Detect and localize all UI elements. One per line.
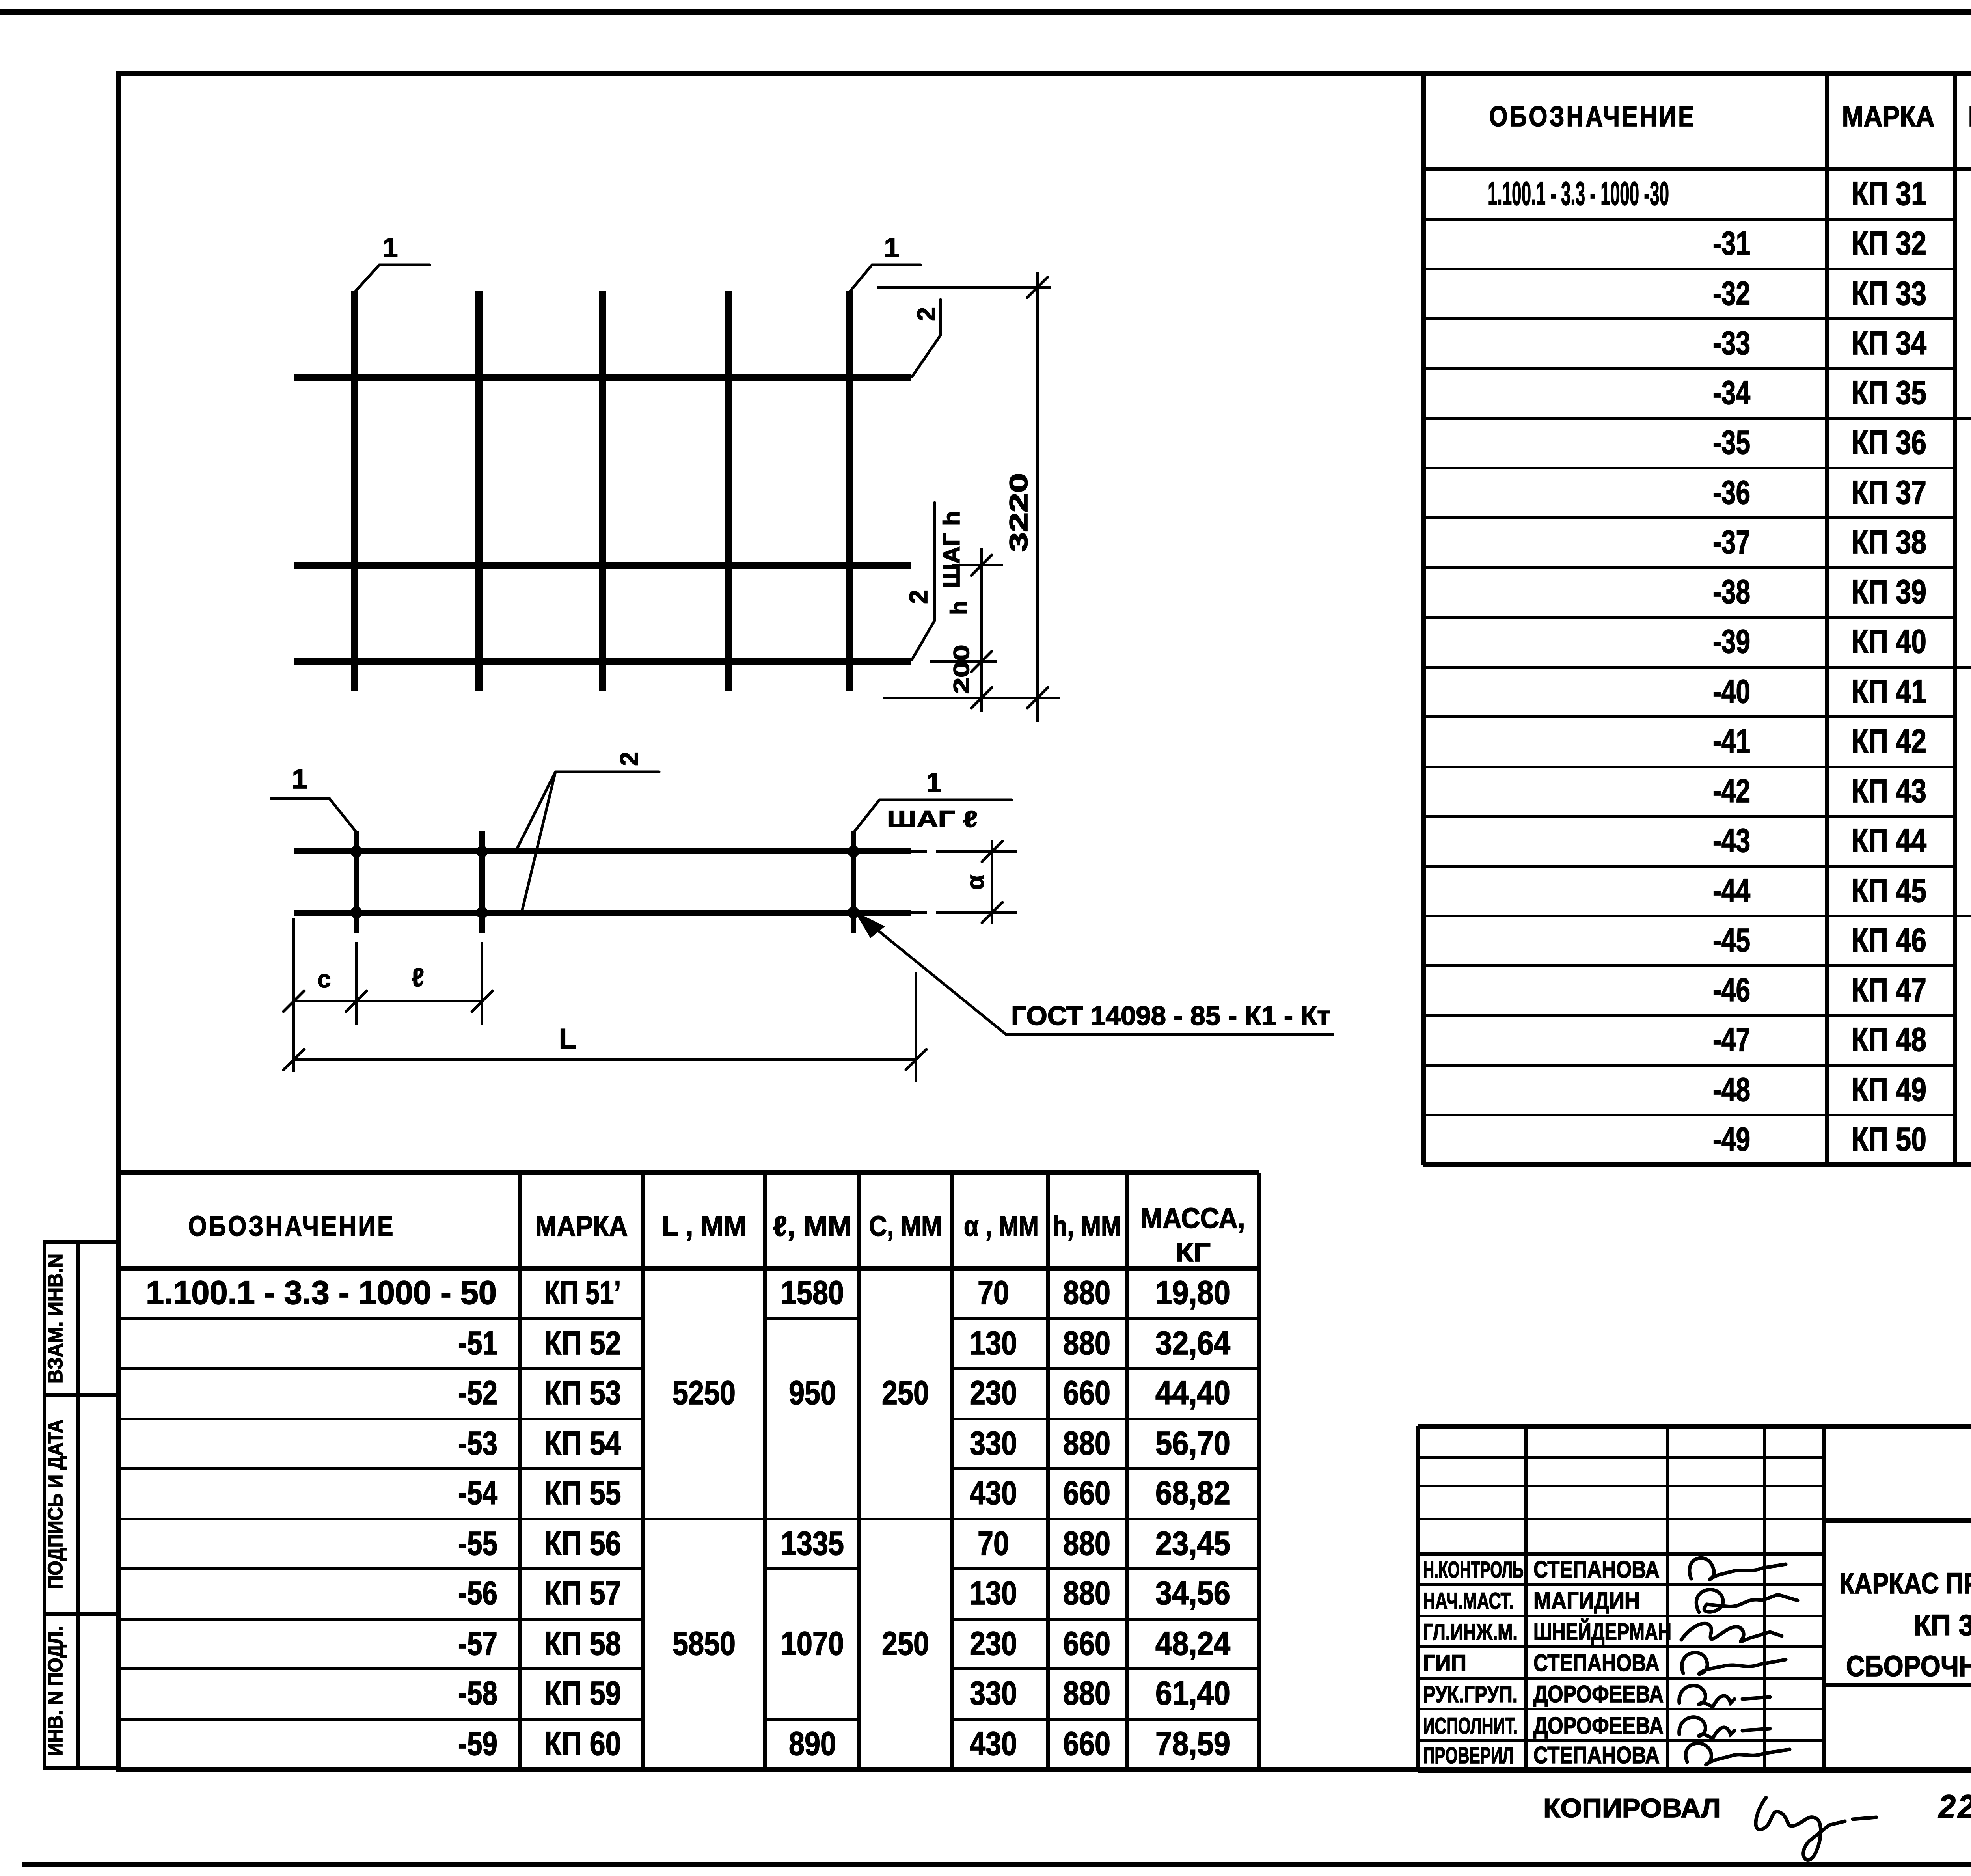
- svg-text:КП 44: КП 44: [1852, 822, 1926, 859]
- svg-text:ГЛ.ИНЖ.М.: ГЛ.ИНЖ.М.: [1423, 1619, 1518, 1645]
- svg-text:КП 55: КП 55: [544, 1474, 621, 1511]
- svg-text:СБОРОЧНЫЙ: СБОРОЧНЫЙ: [1846, 1649, 1971, 1682]
- svg-text:-34: -34: [1713, 374, 1750, 411]
- svg-text:61,40: 61,40: [1155, 1675, 1230, 1712]
- svg-text:-33: -33: [1713, 324, 1750, 361]
- svg-text:48,24: 48,24: [1155, 1625, 1230, 1662]
- svg-text:1: 1: [383, 232, 398, 263]
- svg-text:ВЗАМ. ИНВ.N: ВЗАМ. ИНВ.N: [44, 1254, 67, 1384]
- svg-text:1.100.1 - 3.3 - 1000 - 50: 1.100.1 - 3.3 - 1000 - 50: [146, 1274, 497, 1311]
- svg-text:-47: -47: [1713, 1021, 1750, 1058]
- svg-text:ДОРОФЕЕВА: ДОРОФЕЕВА: [1533, 1712, 1664, 1739]
- svg-text:КП 31 ... КП 60: КП 31 ... КП 60: [1914, 1609, 1971, 1641]
- svg-text:ГИП: ГИП: [1423, 1651, 1466, 1676]
- svg-text:-31: -31: [1713, 225, 1750, 262]
- svg-text:32,64: 32,64: [1155, 1325, 1230, 1362]
- svg-text:880: 880: [1063, 1325, 1110, 1362]
- svg-text:МАРКА: МАРКА: [1842, 101, 1935, 132]
- svg-text:КП 56: КП 56: [544, 1525, 621, 1562]
- svg-text:330: 330: [970, 1425, 1017, 1462]
- svg-text:-46: -46: [1713, 971, 1750, 1008]
- svg-text:КП 47: КП 47: [1852, 971, 1926, 1008]
- svg-text:-36: -36: [1713, 474, 1750, 511]
- svg-text:56,70: 56,70: [1155, 1425, 1230, 1462]
- svg-text:200: 200: [949, 645, 974, 694]
- svg-text:70: 70: [978, 1274, 1009, 1311]
- svg-text:КП 37: КП 37: [1852, 474, 1926, 511]
- svg-text:КП 50: КП 50: [1852, 1121, 1926, 1158]
- svg-text:h: h: [946, 601, 972, 615]
- svg-text:-32: -32: [1713, 275, 1750, 312]
- svg-text:Н.КОНТРОЛЬ: Н.КОНТРОЛЬ: [1423, 1557, 1524, 1583]
- svg-text:78,59: 78,59: [1155, 1725, 1230, 1762]
- svg-text:КП 35: КП 35: [1852, 374, 1926, 411]
- svg-text:РУК.ГРУП.: РУК.ГРУП.: [1423, 1682, 1518, 1707]
- svg-text:L , ММ: L , ММ: [1968, 101, 1971, 132]
- svg-text:-40: -40: [1713, 673, 1750, 710]
- svg-text:-55: -55: [458, 1525, 497, 1562]
- svg-text:880: 880: [1063, 1675, 1110, 1712]
- svg-text:КП 42: КП 42: [1852, 723, 1926, 760]
- svg-text:КП 43: КП 43: [1852, 772, 1926, 809]
- svg-text:44,40: 44,40: [1155, 1374, 1230, 1411]
- svg-text:ПОДПИСЬ И ДАТА: ПОДПИСЬ И ДАТА: [44, 1420, 67, 1589]
- svg-text:-41: -41: [1713, 723, 1750, 760]
- svg-text:КП 36: КП 36: [1852, 424, 1926, 461]
- svg-text:230: 230: [970, 1374, 1017, 1411]
- svg-text:-43: -43: [1713, 822, 1750, 859]
- svg-text:ℓ: ℓ: [412, 963, 424, 992]
- svg-text:-38: -38: [1713, 573, 1750, 610]
- svg-text:КАРКАС ПРОСТРАНСТВЕННЫЙ: КАРКАС ПРОСТРАНСТВЕННЫЙ: [1839, 1567, 1971, 1600]
- svg-text:h, ММ: h, ММ: [1053, 1211, 1121, 1242]
- svg-text:L: L: [559, 1023, 576, 1055]
- svg-text:КП 39: КП 39: [1852, 573, 1926, 610]
- svg-text:МАГИДИН: МАГИДИН: [1533, 1587, 1640, 1614]
- svg-text:КП 46: КП 46: [1852, 922, 1926, 959]
- svg-text:-48: -48: [1713, 1071, 1750, 1108]
- svg-text:-52: -52: [458, 1374, 497, 1411]
- svg-text:КП 33: КП 33: [1852, 275, 1926, 312]
- svg-text:-49: -49: [1713, 1121, 1750, 1158]
- svg-text:α: α: [962, 875, 989, 890]
- svg-text:ОБОЗНАЧЕНИЕ: ОБОЗНАЧЕНИЕ: [188, 1211, 395, 1242]
- svg-text:-54: -54: [458, 1474, 497, 1511]
- svg-text:22179: 22179: [1938, 1788, 1971, 1825]
- svg-text:68,82: 68,82: [1155, 1474, 1230, 1511]
- svg-text:-39: -39: [1713, 623, 1750, 660]
- svg-text:КП 59: КП 59: [544, 1675, 621, 1712]
- svg-text:3220: 3220: [1004, 473, 1033, 552]
- svg-text:ИНВ. N ПОДЛ.: ИНВ. N ПОДЛ.: [44, 1626, 67, 1756]
- svg-text:-45: -45: [1713, 922, 1750, 959]
- svg-text:2: 2: [912, 307, 941, 321]
- svg-text:ПРОВЕРИЛ: ПРОВЕРИЛ: [1423, 1743, 1514, 1768]
- svg-text:660: 660: [1063, 1725, 1110, 1762]
- svg-text:СТЕПАНОВА: СТЕПАНОВА: [1533, 1650, 1660, 1676]
- svg-text:660: 660: [1063, 1374, 1110, 1411]
- svg-text:70: 70: [978, 1525, 1009, 1562]
- svg-text:130: 130: [970, 1325, 1017, 1362]
- svg-text:1.100.1 - 3.3 - 1000 -30: 1.100.1 - 3.3 - 1000 -30: [1488, 175, 1669, 212]
- svg-text:880: 880: [1063, 1274, 1110, 1311]
- svg-text:660: 660: [1063, 1474, 1110, 1511]
- svg-text:1: 1: [292, 764, 307, 794]
- svg-text:ШНЕЙДЕРМАН: ШНЕЙДЕРМАН: [1533, 1619, 1671, 1645]
- svg-text:2: 2: [904, 590, 933, 604]
- svg-text:-53: -53: [458, 1425, 497, 1462]
- svg-text:-35: -35: [1713, 424, 1750, 461]
- svg-text:1335: 1335: [781, 1525, 844, 1562]
- svg-text:34,56: 34,56: [1155, 1574, 1230, 1611]
- svg-text:КОПИРОВАЛ: КОПИРОВАЛ: [1543, 1793, 1721, 1823]
- svg-text:880: 880: [1063, 1525, 1110, 1562]
- svg-text:КП 31: КП 31: [1852, 175, 1926, 212]
- svg-text:-42: -42: [1713, 772, 1750, 809]
- svg-text:КГ: КГ: [1175, 1238, 1211, 1267]
- svg-text:КП 52: КП 52: [544, 1325, 621, 1362]
- svg-text:430: 430: [970, 1474, 1017, 1511]
- svg-text:250: 250: [882, 1374, 929, 1411]
- svg-text:230: 230: [970, 1625, 1017, 1662]
- svg-text:НАЧ.МАСТ.: НАЧ.МАСТ.: [1423, 1588, 1514, 1614]
- svg-text:КП 41: КП 41: [1852, 673, 1926, 710]
- svg-text:5850: 5850: [673, 1625, 736, 1662]
- svg-text:23,45: 23,45: [1155, 1525, 1230, 1562]
- svg-text:ДОРОФЕЕВА: ДОРОФЕЕВА: [1533, 1681, 1664, 1707]
- svg-text:ОБОЗНАЧЕНИЕ: ОБОЗНАЧЕНИЕ: [1489, 101, 1696, 132]
- svg-text:2: 2: [615, 752, 643, 766]
- svg-text:С, ММ: С, ММ: [869, 1211, 942, 1242]
- svg-text:КП 53: КП 53: [544, 1374, 621, 1411]
- svg-text:КП 57: КП 57: [544, 1574, 621, 1611]
- svg-text:1: 1: [884, 232, 900, 263]
- svg-text:МАССА,: МАССА,: [1141, 1203, 1245, 1234]
- svg-text:ИСПОЛНИТ.: ИСПОЛНИТ.: [1423, 1713, 1518, 1739]
- svg-text:КП 32: КП 32: [1852, 225, 1926, 262]
- svg-text:ШАГ h: ШАГ h: [939, 511, 965, 588]
- svg-text:с: с: [317, 966, 331, 993]
- svg-text:1580: 1580: [781, 1274, 844, 1311]
- svg-text:130: 130: [970, 1574, 1017, 1611]
- svg-text:КП 49: КП 49: [1852, 1071, 1926, 1108]
- svg-text:1: 1: [926, 767, 942, 798]
- svg-text:-59: -59: [458, 1725, 497, 1762]
- svg-text:ШАГ ℓ: ШАГ ℓ: [887, 807, 978, 832]
- svg-text:КП 34: КП 34: [1852, 324, 1926, 361]
- svg-text:L , ММ: L , ММ: [662, 1211, 747, 1242]
- svg-text:430: 430: [970, 1725, 1017, 1762]
- svg-text:СТЕПАНОВА: СТЕПАНОВА: [1533, 1556, 1660, 1583]
- svg-text:КП 58: КП 58: [544, 1625, 621, 1662]
- svg-text:КП 40: КП 40: [1852, 623, 1926, 660]
- svg-text:ℓ, ММ: ℓ, ММ: [773, 1211, 852, 1242]
- svg-text:МАРКА: МАРКА: [535, 1211, 628, 1242]
- svg-text:880: 880: [1063, 1425, 1110, 1462]
- svg-text:ГОСТ 14098 - 85 - К1 - Кт: ГОСТ 14098 - 85 - К1 - Кт: [1011, 1001, 1330, 1031]
- svg-text:-44: -44: [1713, 872, 1750, 909]
- svg-text:КП 54: КП 54: [544, 1425, 621, 1462]
- svg-text:α , ММ: α , ММ: [964, 1211, 1039, 1242]
- svg-text:КП 51ʼ: КП 51ʼ: [544, 1274, 621, 1311]
- svg-text:-37: -37: [1713, 523, 1750, 561]
- svg-text:950: 950: [789, 1374, 836, 1411]
- svg-text:-51: -51: [458, 1325, 497, 1362]
- svg-text:890: 890: [789, 1725, 836, 1762]
- svg-text:КП 60: КП 60: [544, 1725, 621, 1762]
- svg-text:КП 38: КП 38: [1852, 523, 1926, 561]
- svg-text:1070: 1070: [781, 1625, 844, 1662]
- svg-text:-57: -57: [458, 1625, 497, 1662]
- svg-text:880: 880: [1063, 1574, 1110, 1611]
- svg-text:660: 660: [1063, 1625, 1110, 1662]
- svg-text:19,80: 19,80: [1155, 1274, 1230, 1311]
- svg-text:СТЕПАНОВА: СТЕПАНОВА: [1533, 1742, 1660, 1768]
- svg-text:КП 48: КП 48: [1852, 1021, 1926, 1058]
- svg-text:-56: -56: [458, 1574, 497, 1611]
- svg-text:330: 330: [970, 1675, 1017, 1712]
- svg-text:250: 250: [882, 1625, 929, 1662]
- svg-text:-58: -58: [458, 1675, 497, 1712]
- svg-text:5250: 5250: [673, 1374, 736, 1411]
- svg-text:КП 45: КП 45: [1852, 872, 1926, 909]
